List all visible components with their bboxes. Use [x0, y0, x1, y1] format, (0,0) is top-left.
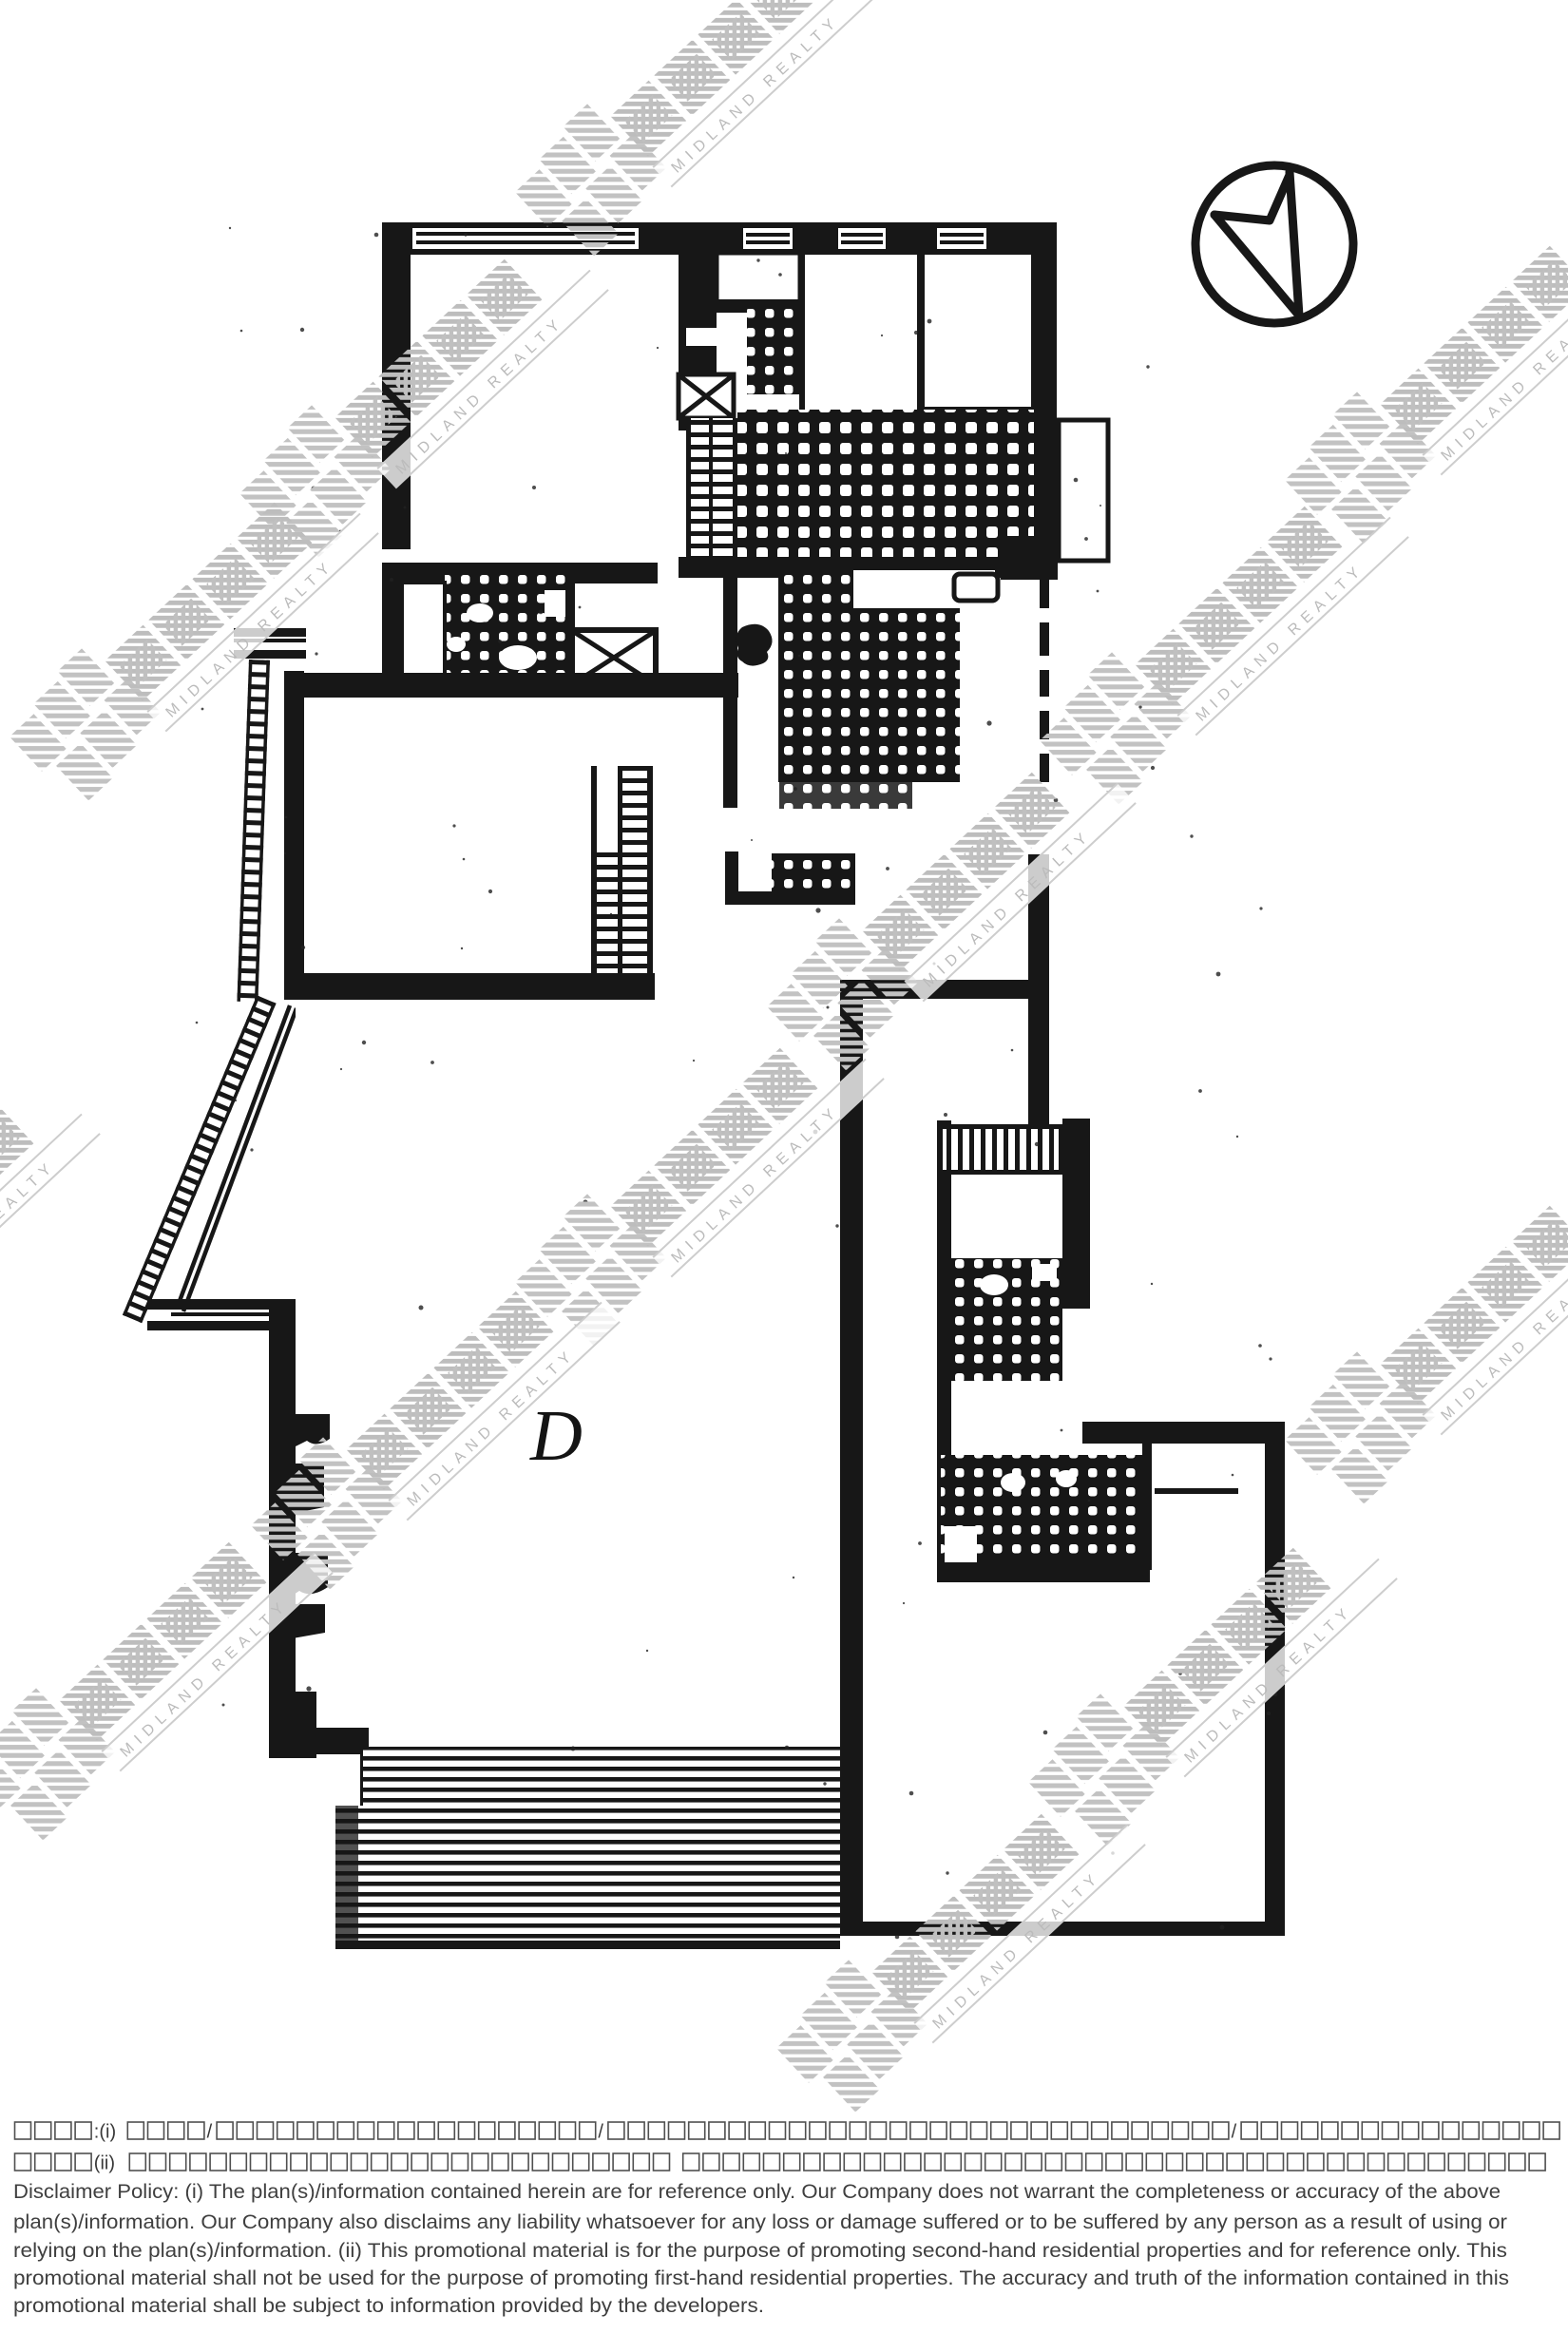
svg-text::(i): :(i)	[94, 2122, 116, 2143]
svg-text:D: D	[529, 1396, 583, 1476]
svg-text:/: /	[207, 2122, 213, 2143]
svg-text:promotional material shall not: promotional material shall not be used f…	[13, 2267, 1509, 2289]
svg-text:/: /	[598, 2122, 603, 2143]
svg-text:(ii): (ii)	[94, 2153, 115, 2174]
svg-text:plan(s)/information. Our Compa: plan(s)/information. Our Company also di…	[13, 2211, 1507, 2233]
svg-text:Disclaimer Policy: (i) The pla: Disclaimer Policy: (i) The plan(s)/infor…	[13, 2181, 1501, 2203]
svg-text:/: /	[1232, 2122, 1237, 2143]
svg-text:promotional material shall be: promotional material shall be subject to…	[13, 2295, 764, 2317]
svg-text:relying on the plan(s)/informa: relying on the plan(s)/information. (ii)…	[13, 2240, 1507, 2262]
